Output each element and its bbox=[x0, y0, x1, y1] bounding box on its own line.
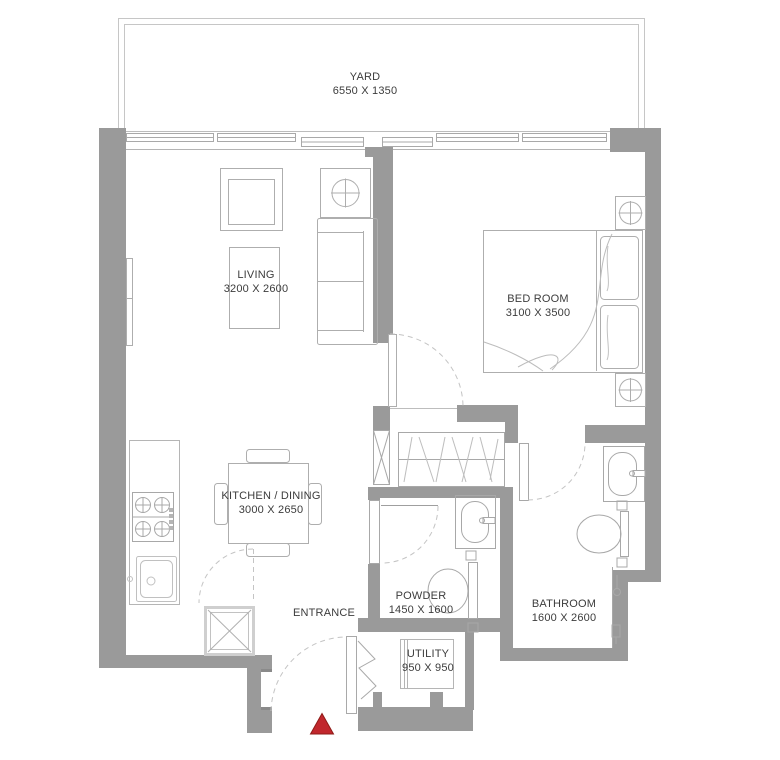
room-label-living: LIVING 3200 X 2600 bbox=[224, 268, 289, 296]
room-dims: 3000 X 2650 bbox=[221, 503, 320, 517]
room-dims: 3200 X 2600 bbox=[224, 282, 289, 296]
room-name: POWDER bbox=[389, 589, 454, 603]
bathroom-door bbox=[520, 443, 586, 501]
room-label-yard: YARD 6550 X 1350 bbox=[333, 70, 398, 98]
room-name: BATHROOM bbox=[532, 597, 597, 611]
sofa-icon bbox=[318, 219, 378, 345]
shaft-box-icon bbox=[206, 608, 254, 655]
living-furniture bbox=[127, 169, 378, 346]
room-label-bedroom: BED ROOM 3100 X 3500 bbox=[506, 292, 571, 320]
chair-icon bbox=[247, 450, 290, 463]
room-name: KITCHEN / DINING bbox=[221, 489, 320, 503]
room-label-utility: UTILITY 950 X 950 bbox=[402, 647, 454, 675]
wardrobe-icon bbox=[399, 433, 505, 487]
pillow-icon bbox=[601, 306, 639, 369]
powder-door bbox=[370, 501, 439, 564]
entrance-marker-icon bbox=[311, 714, 334, 735]
room-name: BED ROOM bbox=[506, 292, 571, 306]
shaft-x-icon bbox=[374, 431, 390, 485]
room-dims: 1600 X 2600 bbox=[532, 611, 597, 625]
kitchen-door-swing bbox=[199, 549, 254, 603]
kitchen-sink-icon bbox=[128, 557, 177, 602]
stove-icon bbox=[133, 493, 174, 542]
room-name: LIVING bbox=[224, 268, 289, 282]
window-left-icon bbox=[127, 259, 133, 346]
room-name: ENTRANCE bbox=[293, 606, 355, 620]
bathroom-toilet-icon bbox=[577, 501, 629, 567]
lamp-table-icon bbox=[321, 169, 371, 218]
room-label-entrance: ENTRANCE bbox=[293, 606, 355, 620]
room-label-bathroom: BATHROOM 1600 X 2600 bbox=[532, 597, 597, 625]
room-label-kitchen-dining: KITCHEN / DINING 3000 X 2650 bbox=[221, 489, 320, 517]
room-dims: 950 X 950 bbox=[402, 661, 454, 675]
floorplan-linework bbox=[0, 0, 780, 760]
nightstand-top-icon bbox=[616, 197, 646, 230]
room-dims: 3100 X 3500 bbox=[506, 306, 571, 320]
dining-set bbox=[199, 450, 322, 604]
nightstand-bottom-icon bbox=[616, 374, 646, 407]
room-name: YARD bbox=[333, 70, 398, 84]
bedroom-door bbox=[389, 334, 464, 409]
powder-sink-icon bbox=[456, 496, 496, 549]
hallway bbox=[374, 431, 505, 487]
room-name: UTILITY bbox=[402, 647, 454, 661]
floor-plan-canvas: YARD 6550 X 1350 LIVING 3200 X 2600 BED … bbox=[0, 0, 780, 760]
room-dims: 6550 X 1350 bbox=[333, 84, 398, 98]
pillow-icon bbox=[601, 237, 639, 300]
armchair-icon bbox=[221, 169, 283, 231]
bathroom-sink-icon bbox=[604, 447, 646, 502]
room-dims: 1450 X 1600 bbox=[389, 603, 454, 617]
entrance-door bbox=[261, 637, 376, 714]
kitchen-counter bbox=[128, 441, 180, 605]
window-band bbox=[100, 132, 660, 150]
chair-icon bbox=[247, 544, 290, 557]
room-label-powder: POWDER 1450 X 1600 bbox=[389, 589, 454, 617]
